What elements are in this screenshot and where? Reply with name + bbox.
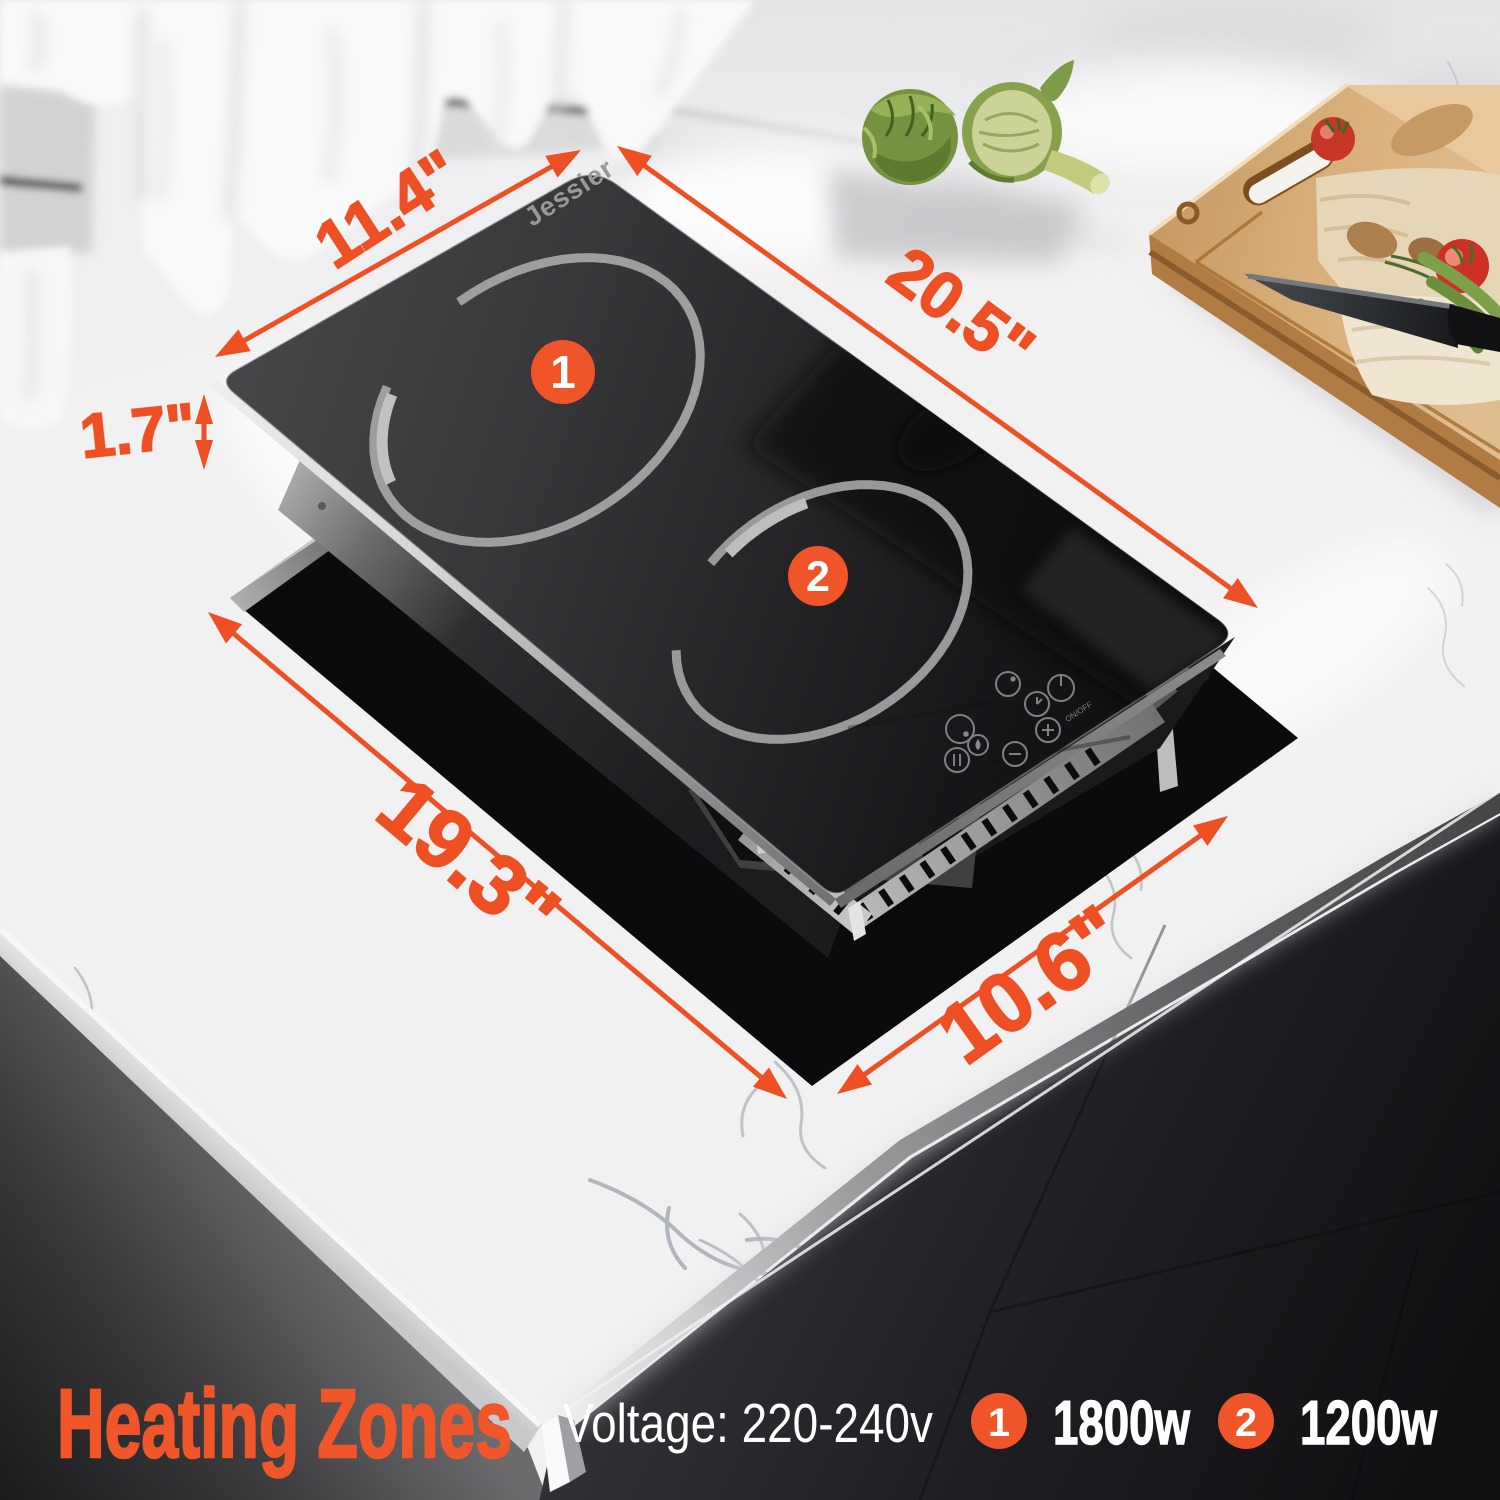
svg-text:2: 2 bbox=[1235, 1401, 1257, 1445]
svg-text:2: 2 bbox=[806, 553, 830, 601]
svg-text:1800w: 1800w bbox=[1053, 1389, 1191, 1458]
svg-text:1: 1 bbox=[988, 1401, 1010, 1445]
svg-text:Heating Zones: Heating Zones bbox=[57, 1369, 512, 1478]
svg-text:Voltage: 220-240v: Voltage: 220-240v bbox=[563, 1392, 933, 1454]
svg-text:1200w: 1200w bbox=[1300, 1389, 1438, 1458]
svg-text:1: 1 bbox=[550, 346, 576, 398]
svg-text:1.7": 1.7" bbox=[77, 391, 199, 472]
